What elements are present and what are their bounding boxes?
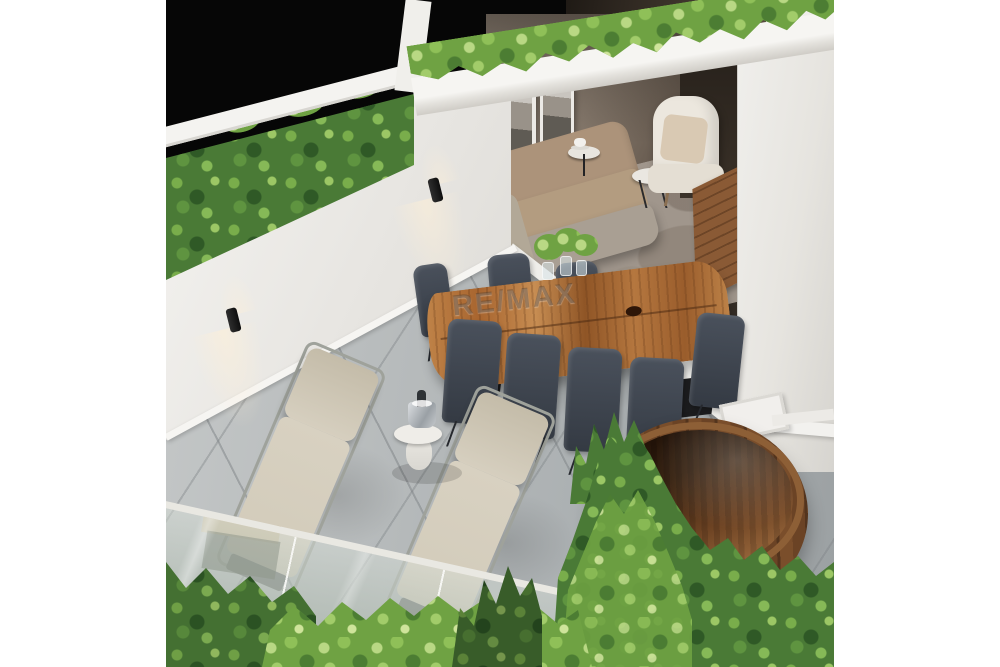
dining-chair-end-right xyxy=(688,312,746,411)
armchair-pillow xyxy=(659,113,708,164)
glass-vase xyxy=(576,260,587,276)
side-table-stem xyxy=(583,154,585,176)
ice xyxy=(412,400,432,407)
terrace-render: RE/MAX xyxy=(166,0,834,667)
render-canvas: RE/MAX xyxy=(0,0,1000,667)
glass-vase xyxy=(560,256,572,276)
centerpiece-sprig xyxy=(572,234,598,256)
glass-vase xyxy=(542,262,554,280)
coffee-cup xyxy=(574,138,586,147)
table-knot xyxy=(626,305,643,317)
